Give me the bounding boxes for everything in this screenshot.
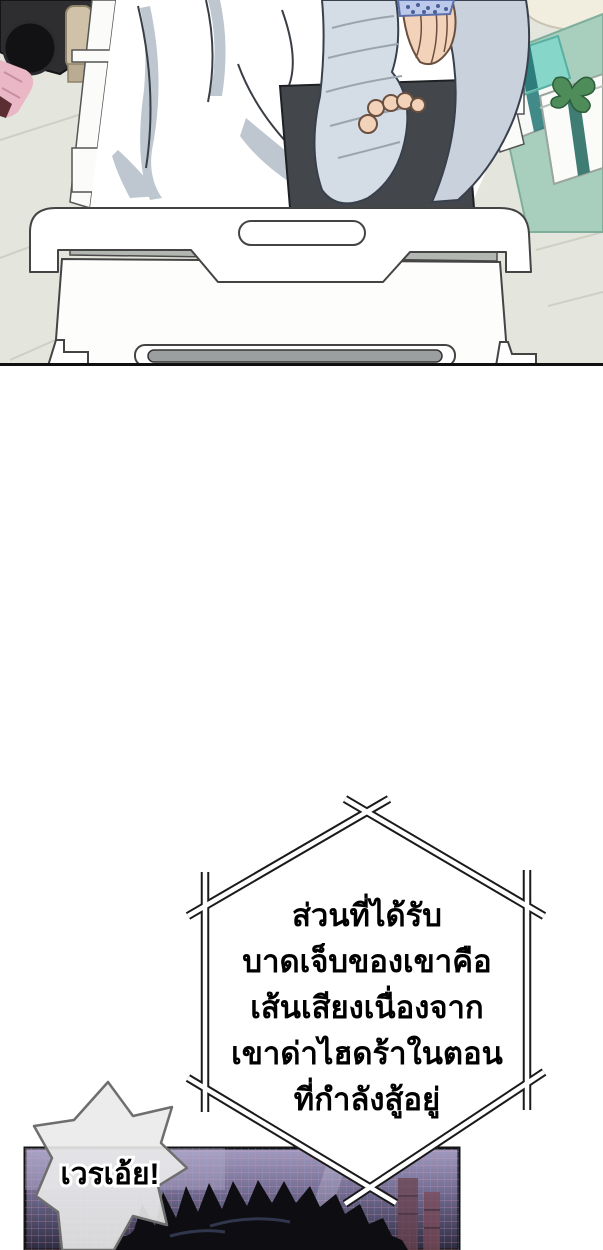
- footboard-handle: [239, 221, 365, 245]
- comic-page: ส่วนที่ได้รับ บาดเจ็บของเขาคือ เส้นเสียง…: [0, 0, 603, 1250]
- speech-bubble-text: เวรเอ้ย! เวรเอ้ย!: [30, 1148, 190, 1200]
- narration-line: ส่วนที่ได้รับ: [203, 893, 531, 939]
- hospital-scene-panel: [0, 0, 603, 369]
- rail-clip-left-top: [72, 50, 114, 62]
- hospital-bed: [70, 0, 529, 208]
- footboard-slot: [148, 350, 442, 362]
- scene-border: [0, 363, 603, 369]
- narration-text: ส่วนที่ได้รับ บาดเจ็บของเขาคือ เส้นเสียง…: [203, 893, 531, 1123]
- hospital-bed-footboard: [30, 208, 536, 366]
- narration-line: บาดเจ็บของเขาคือ: [203, 939, 531, 985]
- narration-line: ที่กำลังสู้อยู่: [203, 1077, 531, 1123]
- narration-line: เส้นเสียงเนื่องจาก: [203, 985, 531, 1031]
- speech-bubble-text-fill: เวรเอ้ย!: [30, 1148, 190, 1200]
- narration-line: เขาด่าไฮดร้าในตอน: [203, 1031, 531, 1077]
